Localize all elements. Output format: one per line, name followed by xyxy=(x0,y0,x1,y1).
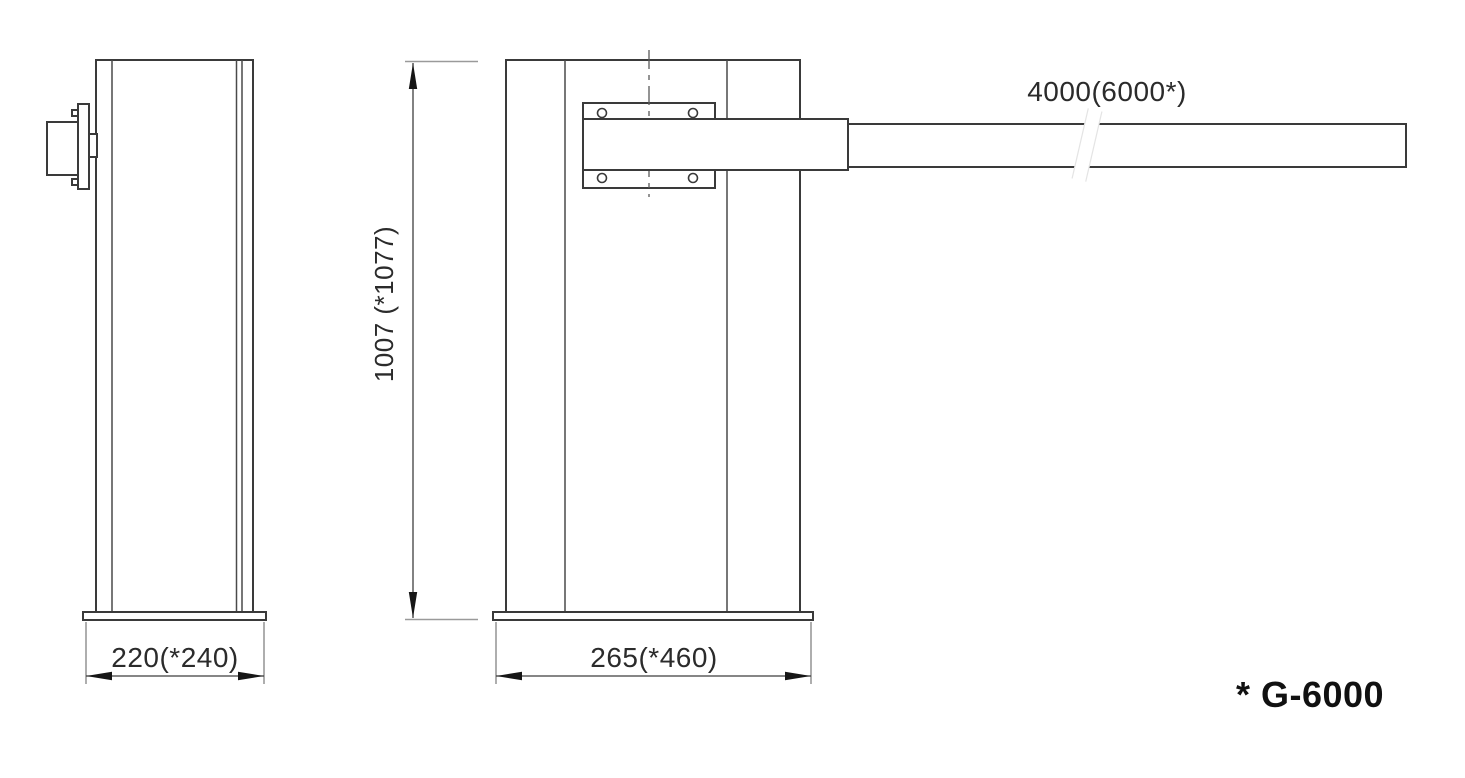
side-post-outline xyxy=(96,60,253,612)
side-bracket-tab-top xyxy=(72,110,78,116)
side-width-arrow-left xyxy=(86,672,112,680)
side-view xyxy=(47,60,266,620)
front-width-arrow-right xyxy=(785,672,811,680)
dimension-front-width: 265(*460) xyxy=(496,622,811,684)
side-bracket-plate xyxy=(78,104,89,189)
side-bracket-housing xyxy=(47,122,78,175)
height-arrow-up xyxy=(409,63,417,89)
boom-arm xyxy=(848,124,1406,167)
height-arrow-down xyxy=(409,592,417,618)
bolt-hole-bottom-left xyxy=(598,174,607,183)
barrier-gate-technical-drawing: 1007 (*1077) 220(*240) 265(*460) 4000(60… xyxy=(0,0,1465,778)
side-base-plate xyxy=(83,612,266,620)
bolt-hole-bottom-right xyxy=(689,174,698,183)
dimension-height: 1007 (*1077) xyxy=(369,62,478,620)
front-base-plate xyxy=(493,612,813,620)
bolt-hole-top-left xyxy=(598,109,607,118)
dimension-side-width: 220(*240) xyxy=(86,622,264,684)
side-width-arrow-right xyxy=(238,672,264,680)
side-shaft-hub xyxy=(89,134,97,157)
drawing-canvas: 1007 (*1077) 220(*240) 265(*460) 4000(60… xyxy=(0,0,1465,778)
side-width-dim-label: 220(*240) xyxy=(111,642,238,673)
bolt-hole-top-right xyxy=(689,109,698,118)
arm-bracket xyxy=(583,119,848,170)
front-view xyxy=(493,50,1406,620)
model-note: * G-6000 xyxy=(1236,674,1384,715)
front-width-arrow-left xyxy=(496,672,522,680)
height-dim-label: 1007 (*1077) xyxy=(369,226,399,382)
arm-length-label: 4000(6000*) xyxy=(1027,76,1187,107)
side-bracket-tab-bottom xyxy=(72,179,78,185)
front-width-dim-label: 265(*460) xyxy=(590,642,717,673)
